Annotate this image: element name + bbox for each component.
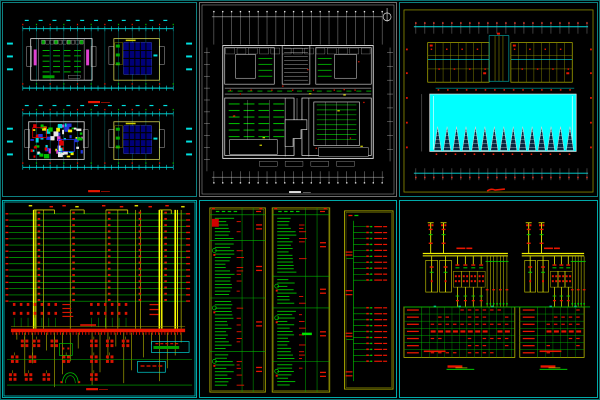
- schedule-table-3-trees: [345, 211, 394, 389]
- riser-diagram: [4, 202, 195, 396]
- sheet-distribution-schedules: [199, 200, 397, 398]
- north-arrow-icon: [383, 8, 391, 22]
- roof-plan: [404, 10, 593, 192]
- sheet-one-line-diagrams: [399, 200, 598, 398]
- below-bus-feeders: [9, 333, 181, 387]
- schedule-table-2: [272, 208, 329, 392]
- sheet-overall-floor-plan: [199, 2, 397, 197]
- building: [223, 46, 373, 159]
- paired-floor-plans-drawing: [3, 3, 196, 196]
- one-line-table-1: [404, 306, 515, 358]
- distribution-schedules-drawing: [200, 201, 396, 397]
- riser-lines: [34, 210, 181, 329]
- mid-equipment-clusters: [13, 303, 158, 327]
- one-line-table-2: [520, 306, 584, 358]
- plan-level-1: [7, 20, 192, 103]
- sheet-roof-plan: [399, 2, 598, 197]
- schedule-table-1: [210, 208, 265, 392]
- top-grid-ticks: [213, 11, 383, 45]
- sheet-riser-diagram: [2, 200, 197, 398]
- one-line-unit-1: [423, 223, 509, 307]
- overall-plan: [202, 5, 394, 194]
- roof-plan-drawing: [400, 3, 597, 196]
- overall-floor-plan-drawing: [200, 3, 396, 196]
- riser-diagram-drawing: [3, 201, 196, 397]
- floor-unit-marks: [38, 212, 167, 301]
- one-line-diagrams-drawing: [400, 201, 597, 397]
- plan-level-2: [7, 105, 192, 192]
- sheet-paired-floor-plans: [2, 2, 197, 197]
- one-line-unit-2: [522, 223, 586, 307]
- cad-montage-stage: [0, 0, 600, 400]
